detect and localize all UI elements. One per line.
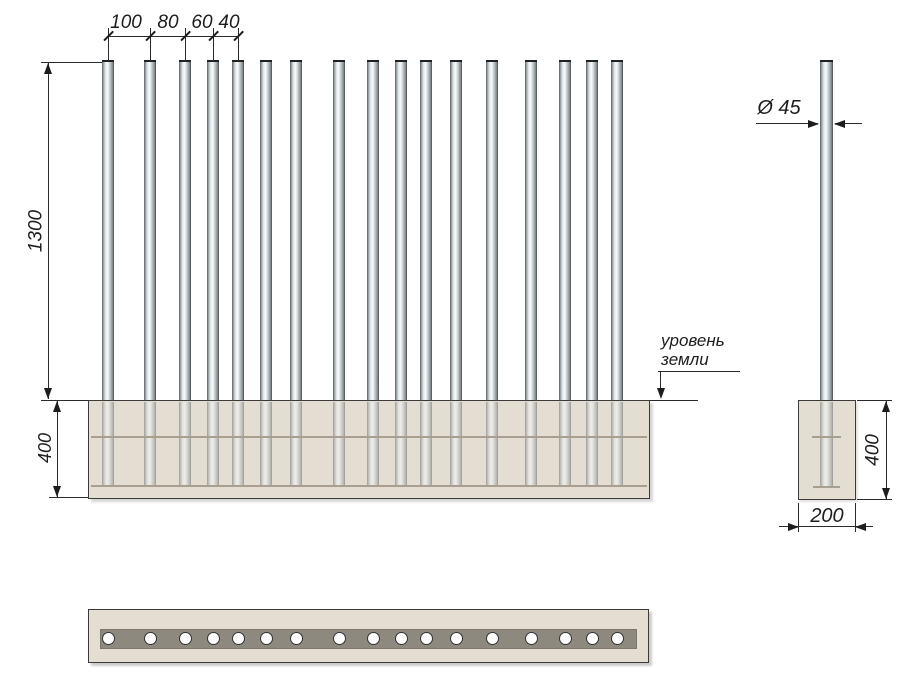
ground-level-label: уровень земли	[661, 331, 725, 369]
fence-pole	[367, 60, 379, 401]
ground-leader-underline	[658, 371, 740, 372]
fence-pole-underground	[290, 402, 302, 486]
fence-pole-underground	[525, 402, 537, 486]
ground-level-label-line2: земли	[661, 350, 725, 369]
fence-pole	[611, 60, 623, 401]
fence-pole-underground	[232, 402, 244, 486]
ground-line-left	[41, 400, 90, 401]
fence-pole-underground	[260, 402, 272, 486]
pole-hole	[559, 632, 572, 645]
fence-pole-underground	[486, 402, 498, 486]
embed-dim-line-left	[57, 400, 58, 497]
fence-pole-underground	[179, 402, 191, 486]
side-pole-tick	[812, 436, 841, 438]
pole-hole	[290, 632, 303, 645]
pole-hole	[525, 632, 538, 645]
fence-pole-underground	[207, 402, 219, 486]
ground-leader-arrow	[657, 388, 665, 399]
diameter-arrow-left	[808, 120, 819, 128]
pole-hole	[420, 632, 433, 645]
fence-pole	[232, 60, 244, 401]
fence-pole	[450, 60, 462, 401]
fence-pole-underground	[611, 402, 623, 486]
spacing-dim-80: 80	[157, 13, 178, 32]
embed-depth-label-left: 400	[36, 433, 54, 463]
fence-pole	[260, 60, 272, 401]
ground-leader-drop	[660, 371, 661, 389]
width-dim-arrow-left	[788, 523, 799, 531]
ground-line-right	[650, 400, 698, 401]
foundation-rebar-line-upper	[91, 436, 647, 438]
pole-hole	[367, 632, 380, 645]
fence-pole-underground	[559, 402, 571, 486]
pole-hole	[144, 632, 157, 645]
fence-pole-underground	[333, 402, 345, 486]
fence-pole	[486, 60, 498, 401]
embed-dim-bottom-extension	[49, 497, 90, 498]
fence-pole	[290, 60, 302, 401]
fence-pole	[144, 60, 156, 401]
spacing-dim-60: 60	[191, 13, 212, 32]
height-dimension-line	[48, 63, 49, 399]
side-pole-bottom-line	[813, 486, 840, 488]
fence-pole	[586, 60, 598, 401]
fence-pole	[102, 60, 114, 401]
pole-hole	[207, 632, 220, 645]
fence-pole	[525, 60, 537, 401]
pole-hole	[260, 632, 273, 645]
pole-hole	[232, 632, 245, 645]
side-embed-dim-line	[886, 400, 887, 500]
fence-pole-underground	[102, 402, 114, 486]
fence-pole-underground	[395, 402, 407, 486]
height-dim-label: 1300	[27, 210, 46, 252]
spacing-dim-40: 40	[218, 13, 239, 32]
pole-hole	[102, 632, 115, 645]
fence-pole-underground	[367, 402, 379, 486]
fence-pole-underground	[450, 402, 462, 486]
pole-hole	[586, 632, 599, 645]
spacing-dim-100: 100	[110, 13, 142, 32]
fence-pole	[559, 60, 571, 401]
ground-level-label-line1: уровень	[661, 331, 725, 350]
side-view-pole	[820, 60, 833, 401]
side-pole-underground	[820, 402, 833, 487]
fence-pole	[207, 60, 219, 401]
pole-hole	[395, 632, 408, 645]
pole-hole	[486, 632, 499, 645]
embed-dim-arrow-bottom	[53, 486, 61, 497]
side-embed-arrow-bottom	[882, 488, 890, 499]
pole-hole	[333, 632, 346, 645]
fence-pole	[333, 60, 345, 401]
pole-hole	[611, 632, 624, 645]
foundation-width-label: 200	[810, 506, 843, 526]
diameter-label: Ø 45	[757, 98, 800, 118]
pole-hole	[179, 632, 192, 645]
diameter-arrow-right	[834, 120, 845, 128]
fence-pole-underground	[144, 402, 156, 486]
fence-technical-drawing: 100 80 60 40 1300 400 уровень земли Ø 45…	[0, 0, 920, 682]
fence-pole-underground	[586, 402, 598, 486]
side-embed-depth-label: 400	[864, 434, 883, 466]
foundation-rebar-line-lower	[91, 485, 647, 487]
fence-pole	[179, 60, 191, 401]
fence-pole	[395, 60, 407, 401]
embed-dim-arrow-top	[53, 401, 61, 412]
height-dim-arrow-bottom	[44, 388, 52, 399]
height-dim-arrow-top	[44, 63, 52, 74]
side-embed-arrow-top	[882, 401, 890, 412]
fence-pole	[420, 60, 432, 401]
top-dimension-line	[108, 36, 239, 37]
pole-hole	[450, 632, 463, 645]
width-dim-arrow-right	[855, 523, 866, 531]
fence-pole-underground	[420, 402, 432, 486]
